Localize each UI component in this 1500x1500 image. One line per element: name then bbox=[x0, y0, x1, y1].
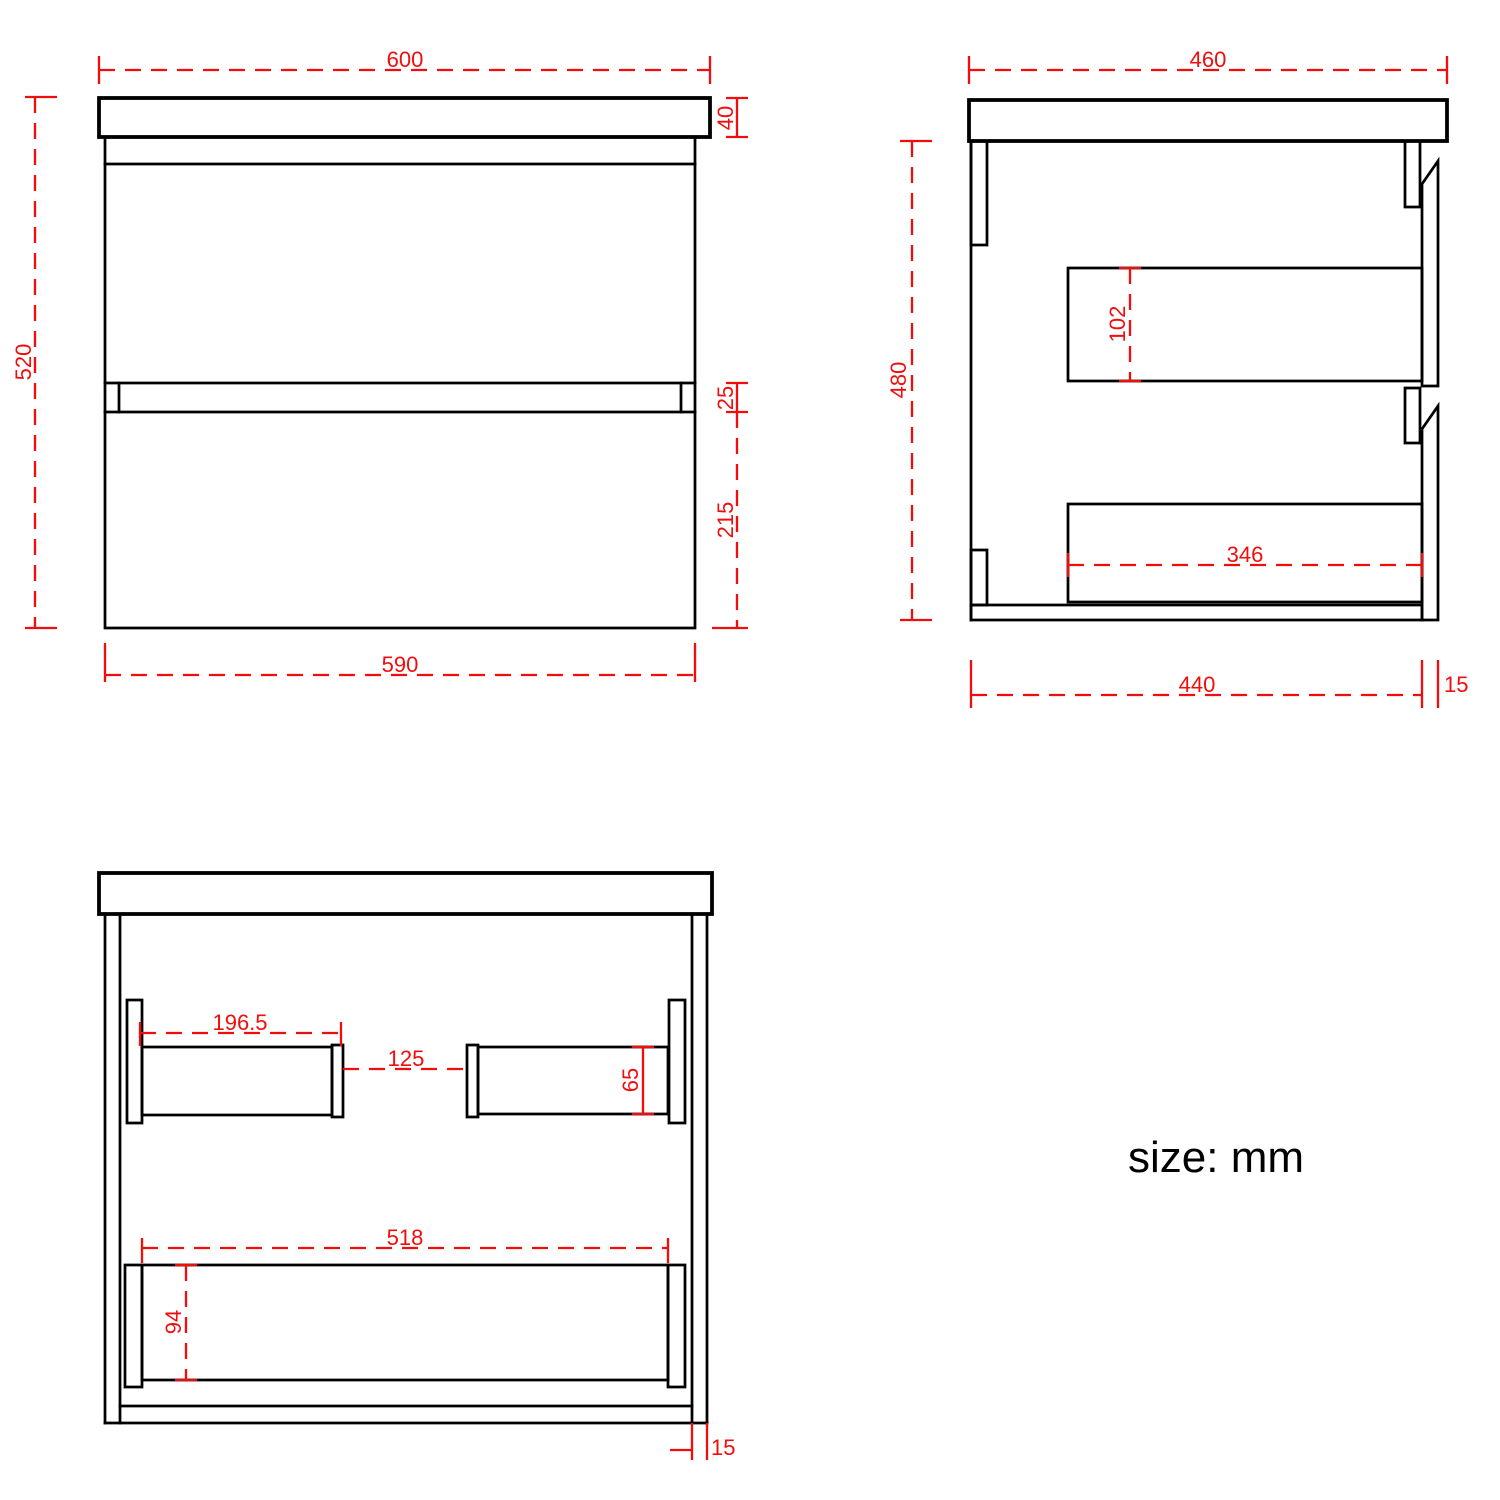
dim-side-height-body: 480 bbox=[886, 141, 932, 620]
dim-front-countertop-thickness: 40 bbox=[713, 98, 748, 137]
internal-left-tall-cap bbox=[127, 1000, 142, 1123]
dim-side-depth-top: 460 bbox=[969, 47, 1447, 84]
dim-label-520: 520 bbox=[11, 344, 36, 381]
dim-side-depth-bottom: 440 15 bbox=[971, 660, 1468, 708]
side-lower-front-rail bbox=[1405, 388, 1420, 443]
internal-lower-rail bbox=[142, 1265, 668, 1380]
dim-internal-rail-gap: 125 bbox=[343, 1046, 468, 1071]
side-bottom-bracket bbox=[971, 550, 987, 605]
side-bottom-panel bbox=[971, 605, 1422, 620]
dim-label-215: 215 bbox=[713, 502, 738, 539]
dim-label-102: 102 bbox=[1105, 306, 1130, 343]
dim-front-height-total: 520 bbox=[11, 97, 57, 628]
internal-right-rail-end-cap bbox=[467, 1045, 478, 1117]
dim-label-346: 346 bbox=[1227, 542, 1264, 567]
dim-side-lower-drawer: 346 bbox=[1068, 542, 1422, 577]
internal-right-tall-cap bbox=[669, 1000, 685, 1123]
front-view: 600 520 40 25 215 bbox=[11, 47, 748, 682]
dim-label-65: 65 bbox=[618, 1068, 643, 1092]
side-countertop bbox=[969, 100, 1447, 141]
dim-front-width-bottom: 590 bbox=[105, 643, 695, 682]
dim-internal-rail-height: 65 bbox=[618, 1047, 654, 1114]
internal-countertop bbox=[99, 873, 712, 914]
dim-label-460: 460 bbox=[1190, 47, 1227, 72]
internal-lower-right-cap bbox=[668, 1265, 685, 1387]
internal-left-rail-end-cap bbox=[332, 1045, 343, 1117]
dim-label-440: 440 bbox=[1179, 672, 1216, 697]
dim-front-width-top: 600 bbox=[99, 47, 710, 84]
dim-label-40: 40 bbox=[713, 106, 738, 130]
dim-label-196-5: 196.5 bbox=[212, 1010, 267, 1035]
internal-left-rail bbox=[142, 1047, 332, 1115]
dim-side-upper-drawer: 102 bbox=[1105, 268, 1141, 381]
dim-label-15-internal: 15 bbox=[711, 1435, 735, 1460]
dim-label-15-side: 15 bbox=[1444, 672, 1468, 697]
dim-internal-left-rail: 196.5 bbox=[140, 1010, 341, 1046]
dim-label-600: 600 bbox=[387, 47, 424, 72]
dim-internal-lower-height: 94 bbox=[161, 1265, 197, 1380]
dim-label-480: 480 bbox=[886, 362, 911, 399]
dim-label-25: 25 bbox=[713, 386, 738, 410]
internal-lower-left-cap bbox=[125, 1265, 142, 1387]
technical-drawing: 600 520 40 25 215 bbox=[0, 0, 1500, 1500]
dim-label-518: 518 bbox=[387, 1225, 424, 1250]
drawing-page: 600 520 40 25 215 bbox=[0, 0, 1500, 1500]
units-note: size: mm bbox=[1128, 1133, 1304, 1182]
side-top-bracket bbox=[971, 141, 987, 245]
dim-internal-lower-width: 518 bbox=[142, 1225, 668, 1263]
dim-internal-panel-thickness: 15 bbox=[670, 1423, 735, 1460]
side-upper-front-rail bbox=[1405, 141, 1420, 207]
side-view: 460 480 102 346 440 bbox=[886, 47, 1468, 708]
dim-label-125: 125 bbox=[388, 1046, 425, 1071]
internal-front-view: 196.5 125 65 518 94 bbox=[99, 873, 735, 1460]
dim-front-drawer-gap: 25 bbox=[713, 383, 748, 412]
dim-label-94: 94 bbox=[161, 1310, 186, 1334]
dim-front-lower-drawer-height: 215 bbox=[712, 412, 748, 628]
front-countertop bbox=[99, 98, 710, 137]
side-lower-drawer-front bbox=[1422, 406, 1438, 620]
dim-label-590: 590 bbox=[382, 652, 419, 677]
side-upper-drawer-front bbox=[1422, 161, 1438, 386]
